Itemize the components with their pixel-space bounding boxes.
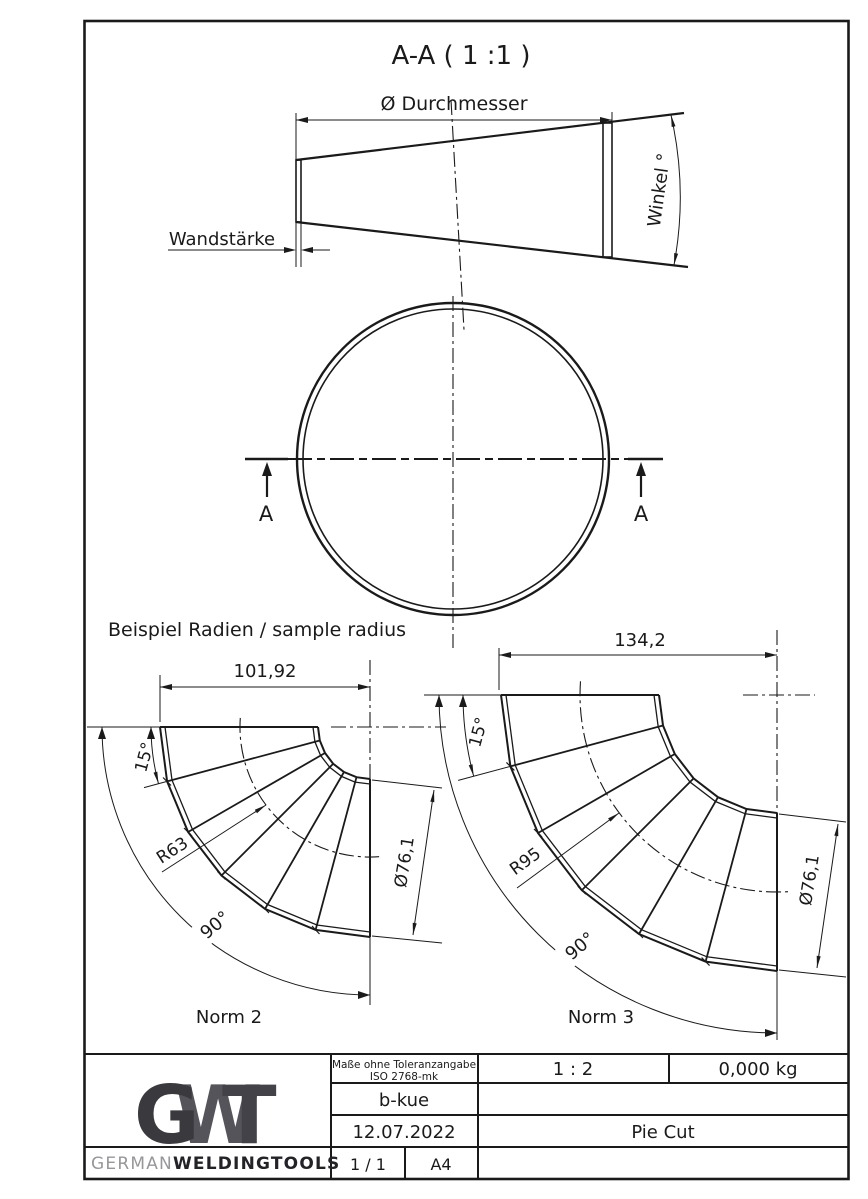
section-marker-right: A (634, 502, 649, 526)
cone-section-view: A-A ( 1 :1 ) Ø Durchmesser Wandstärke Wi… (168, 41, 688, 330)
norm3-caption: Norm 3 (568, 1007, 634, 1028)
logo-letter-g: G (134, 1069, 200, 1162)
section-arrow-left (262, 462, 272, 476)
tolerance-note-line1: Maße ohne Toleranzangabe (332, 1059, 476, 1071)
cone-centerline (451, 100, 464, 330)
samples-heading: Beispiel Radien / sample radius (108, 619, 406, 641)
section-arrow-right (636, 462, 646, 476)
section-title: A-A ( 1 :1 ) (391, 41, 530, 71)
scale-value: 1 : 2 (553, 1059, 593, 1080)
author-value: b-kue (379, 1090, 429, 1111)
brand-wordmark: GERMANWELDINGTOOLS (91, 1154, 340, 1174)
norm3-diagram: 134,2 15° R95 (424, 630, 846, 1040)
norm3-width-dim: 134,2 (614, 630, 666, 651)
norm2-radius-label: R63 (153, 833, 192, 868)
norm3-radius-label: R95 (506, 844, 545, 880)
norm3-diameter-label: Ø76,1 (796, 853, 824, 907)
norm2-segment-angle: 15° (131, 740, 158, 774)
cone-bottom-edge (296, 222, 688, 267)
sheet-number: 1 / 1 (350, 1155, 386, 1174)
section-marker-left: A (259, 502, 274, 526)
diameter-label: Ø Durchmesser (380, 93, 527, 115)
wall-thickness-label: Wandstärke (169, 229, 275, 250)
drawing-sheet: A-A ( 1 :1 ) Ø Durchmesser Wandstärke Wi… (0, 0, 868, 1199)
tolerance-note-line2: ISO 2768-mk (370, 1071, 439, 1083)
cone-small-end-wall (296, 160, 301, 222)
technical-drawing-canvas: A-A ( 1 :1 ) Ø Durchmesser Wandstärke Wi… (0, 0, 868, 1199)
angle-label: Winkel ° (644, 152, 675, 229)
drawing-frame (85, 21, 849, 1179)
part-name: Pie Cut (631, 1122, 694, 1143)
date-value: 12.07.2022 (352, 1122, 455, 1143)
norm2-caption: Norm 2 (196, 1007, 262, 1028)
norm2-diameter-label: Ø76,1 (391, 835, 419, 889)
pipe-top-view: A A (245, 296, 663, 648)
norm2-width-dim: 101,92 (234, 661, 297, 682)
norm3-segment-angle: 15° (465, 715, 492, 749)
company-logo: W G T GERMANWELDINGTOOLS (91, 1069, 340, 1174)
angle-dim-arc (671, 115, 680, 265)
weight-value: 0,000 kg (718, 1059, 797, 1080)
norm2-diagram: 101,92 15° R63 (87, 660, 446, 1028)
paper-format: A4 (430, 1155, 451, 1174)
logo-letter-t: T (222, 1069, 277, 1162)
title-block: W G T GERMANWELDINGTOOLS Maße ohne Toler… (84, 1054, 848, 1179)
cone-big-end-wall (603, 123, 612, 257)
